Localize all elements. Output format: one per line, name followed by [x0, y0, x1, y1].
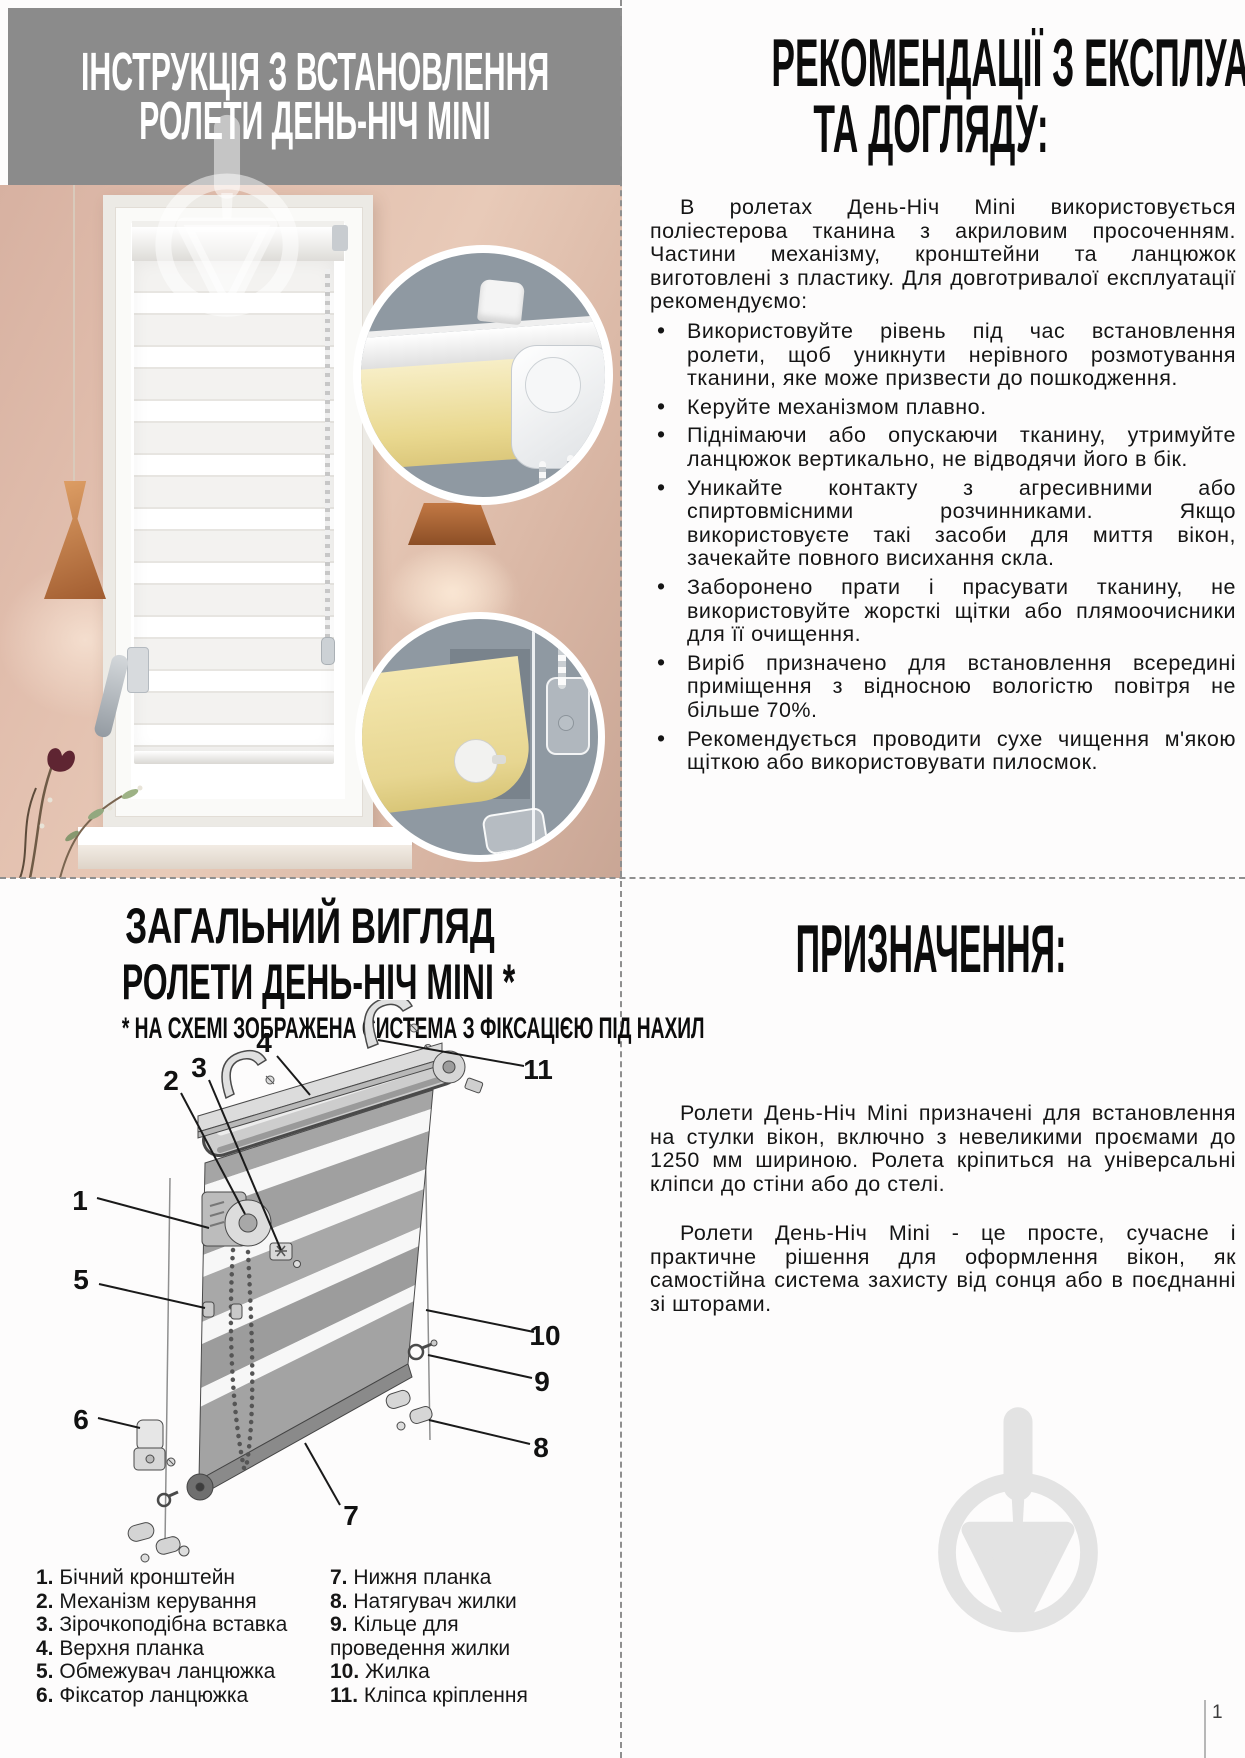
chain-weight: [321, 637, 335, 665]
callout-7: 7: [343, 1500, 359, 1531]
recommendations-title: РЕКОМЕНДАЦІЇ З ЕКСПЛУАТАЦІЇ ТА ДОГЛЯДУ:: [624, 30, 1238, 162]
blind-fabric: [134, 261, 334, 753]
cone-lamp: [408, 503, 496, 545]
purpose-paragraph-2: Ролети День-Ніч Mini - це просте, сучасн…: [650, 1222, 1236, 1316]
inset-fixator: [481, 806, 548, 855]
watermark-logo-gray-icon: [921, 1404, 1115, 1646]
recommendation-item: Керуйте механізмом плавно.: [650, 396, 1236, 420]
callout-10: 10: [529, 1320, 560, 1351]
legend-item: 10. Жилка: [330, 1660, 568, 1684]
legend-item: 3. Зірочкоподібна вставка: [36, 1613, 336, 1637]
recommendations-title-line1: РЕКОМЕНДАЦІЇ З ЕКСПЛУАТАЦІЇ: [771, 30, 1090, 96]
lamp-cord: [73, 185, 75, 483]
recommendations-list: Використовуйте рівень під час встановлен…: [650, 320, 1236, 780]
recommendation-item: Рекомендується проводити сухе чищення м'…: [650, 728, 1236, 775]
watermark-logo-icon: [140, 112, 314, 329]
install-title-band: ІНСТРУКЦІЯ З ВСТАНОВЛЕННЯ РОЛЕТИ ДЕНЬ-НІ…: [8, 8, 622, 185]
vertical-dashed-divider: [620, 0, 622, 1758]
overview-title-line1: ЗАГАЛЬНИЙ ВИГЛЯД: [104, 898, 516, 954]
purpose-title: ПРИЗНАЧЕННЯ:: [624, 916, 1238, 982]
pendant-lamp: [44, 481, 106, 599]
recommendation-item: Уникайте контакту з агресивними або спир…: [650, 477, 1236, 571]
recommendations-title-line2: ТА ДОГЛЯДУ:: [771, 96, 1090, 162]
inset-chain-strand: [539, 461, 546, 505]
legend-item: 7. Нижня планка: [330, 1566, 568, 1590]
callout-6: 6: [73, 1404, 89, 1435]
recommendation-item: Заборонено прати і прасувати тканину, не…: [650, 576, 1236, 647]
recommendation-item: Виріб призначено для встановлення всеред…: [650, 652, 1236, 723]
roller-blind-diagram: 1 2 3 4 5 6 7 8 9 10 11: [40, 1000, 580, 1575]
legend-item: 9. Кільце для проведення жилки: [330, 1613, 568, 1660]
legend-item: 8. Натягувач жилки: [330, 1590, 568, 1614]
legend-item: 11. Кліпса кріплення: [330, 1684, 568, 1708]
window-handle-plate: [127, 647, 149, 693]
purpose-title-text: ПРИЗНАЧЕННЯ:: [778, 916, 1085, 982]
left-wall-anchors: [126, 1492, 189, 1562]
page-number-divider: [1204, 1700, 1206, 1758]
purpose-paragraph-1: Ролети День-Ніч Mini призначені для вста…: [650, 1102, 1236, 1196]
instruction-leaflet-page: ІНСТРУКЦІЯ З ВСТАНОВЛЕННЯ РОЛЕТИ ДЕНЬ-НІ…: [0, 0, 1245, 1758]
legend-item: 5. Обмежувач ланцюжка: [36, 1660, 336, 1684]
callout-11: 11: [523, 1054, 553, 1085]
horizontal-dashed-divider: [0, 877, 1245, 879]
inset-tensioner-screw: [558, 715, 574, 731]
callout-8: 8: [533, 1432, 549, 1463]
plant-group: [20, 748, 143, 878]
inset-mechanism-cap: [525, 357, 581, 413]
legend-left-column: 1. Бічний кронштейн 2. Механізм керуванн…: [36, 1566, 336, 1707]
recommendations-intro: В ролетах День-Ніч Mini використовується…: [650, 196, 1236, 314]
callout-9: 9: [534, 1366, 550, 1397]
callout-4: 4: [256, 1027, 272, 1058]
recommendation-item: Використовуйте рівень під час встановлен…: [650, 320, 1236, 391]
legend-item: 6. Фіксатор ланцюжка: [36, 1684, 336, 1708]
legend-item: 4. Верхня планка: [36, 1637, 336, 1661]
legend-right-column: 7. Нижня планка 8. Натягувач жилки 9. Кі…: [330, 1566, 568, 1707]
page-number: 1: [1212, 1702, 1223, 1724]
legend-item: 1. Бічний кронштейн: [36, 1566, 336, 1590]
chain-fixator: [134, 1420, 175, 1470]
blind-chain: [325, 269, 330, 641]
callout-5: 5: [73, 1264, 89, 1295]
wire-tensioner: [384, 1389, 433, 1430]
callout-1: 1: [72, 1185, 88, 1216]
plant-branches: [0, 730, 210, 878]
inset-clip: [477, 279, 525, 325]
install-title-line1: ІНСТРУКЦІЯ З ВСТАНОВЛЕННЯ: [81, 48, 549, 97]
recommendation-item: Піднімаючи або опускаючи тканину, утриму…: [650, 424, 1236, 471]
callout-3: 3: [191, 1052, 207, 1083]
legend-item: 2. Механізм керування: [36, 1590, 336, 1614]
inset-chain-strand2: [567, 455, 574, 505]
inset-disc-pin: [492, 755, 506, 764]
blind-bracket: [332, 225, 348, 251]
callout-2: 2: [163, 1065, 179, 1096]
inset-mechanism-photo: [353, 245, 613, 505]
inset-bottom-photo: [355, 612, 605, 862]
